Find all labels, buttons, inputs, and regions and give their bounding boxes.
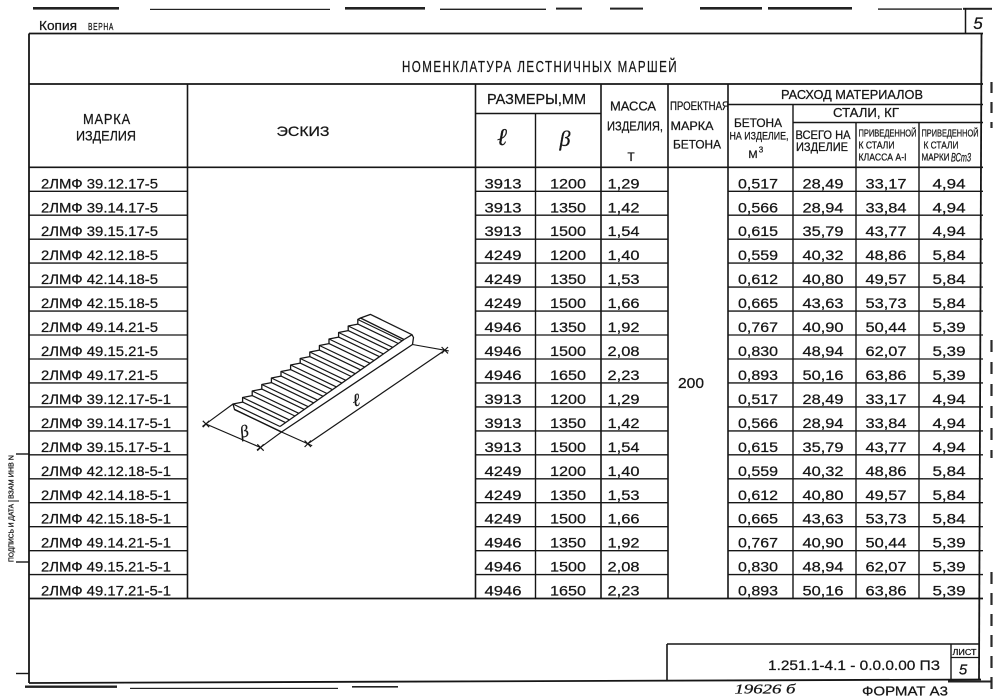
svg-text:2ЛМФ 49.14.21-5: 2ЛМФ 49.14.21-5 — [41, 319, 158, 335]
svg-text:43,77: 43,77 — [866, 224, 907, 239]
svg-text:49,57: 49,57 — [866, 488, 907, 503]
svg-text:1,53: 1,53 — [608, 488, 640, 503]
svg-text:28,94: 28,94 — [803, 416, 845, 431]
svg-text:4,94: 4,94 — [933, 392, 967, 407]
svg-text:1650: 1650 — [550, 584, 586, 599]
svg-text:1200: 1200 — [550, 176, 586, 191]
svg-text:0,615: 0,615 — [738, 224, 778, 239]
svg-text:43,63: 43,63 — [803, 512, 844, 527]
svg-text:МАРКА: МАРКА — [83, 111, 131, 128]
svg-text:МАССА: МАССА — [610, 99, 656, 114]
svg-text:50,44: 50,44 — [866, 536, 908, 551]
svg-text:0,615: 0,615 — [738, 440, 778, 455]
svg-text:3913: 3913 — [485, 224, 522, 239]
svg-text:2,08: 2,08 — [608, 344, 640, 359]
svg-text:3913: 3913 — [485, 176, 522, 191]
svg-text:ВСт3: ВСт3 — [951, 151, 971, 165]
svg-text:40,90: 40,90 — [803, 536, 844, 551]
svg-text:4,94: 4,94 — [933, 224, 967, 239]
svg-text:1.251.1-4.1 - 0.0.0.00 ПЗ: 1.251.1-4.1 - 0.0.0.00 ПЗ — [768, 658, 940, 673]
svg-text:5,39: 5,39 — [933, 584, 966, 599]
svg-text:0,893: 0,893 — [738, 368, 778, 383]
svg-text:4,94: 4,94 — [933, 176, 967, 191]
svg-text:РАСХОД МАТЕРИАЛОВ: РАСХОД МАТЕРИАЛОВ — [781, 88, 923, 102]
svg-text:4946: 4946 — [485, 536, 522, 551]
svg-text:50,16: 50,16 — [803, 584, 844, 599]
svg-text:0,665: 0,665 — [738, 296, 778, 311]
svg-text:М: М — [748, 149, 757, 161]
svg-text:5,84: 5,84 — [933, 248, 967, 263]
svg-text:2ЛМФ 42.12.18-5-1: 2ЛМФ 42.12.18-5-1 — [41, 463, 171, 479]
svg-text:35,79: 35,79 — [803, 224, 844, 239]
svg-text:3: 3 — [759, 146, 764, 155]
svg-text:БЕТОНА: БЕТОНА — [673, 138, 721, 152]
svg-text:1,66: 1,66 — [608, 296, 640, 311]
svg-text:4249: 4249 — [485, 272, 522, 287]
svg-text:2ЛМФ 49.15.21-5: 2ЛМФ 49.15.21-5 — [41, 343, 158, 359]
svg-text:1350: 1350 — [550, 272, 586, 287]
svg-text:ИЗДЕЛИЕ: ИЗДЕЛИЕ — [796, 142, 848, 154]
svg-text:19626 б: 19626 б — [735, 683, 797, 697]
svg-text:ПРОЕКТНАЯ: ПРОЕКТНАЯ — [670, 99, 729, 113]
svg-text:2ЛМФ 49.14.21-5-1: 2ЛМФ 49.14.21-5-1 — [41, 535, 171, 551]
svg-text:2ЛМФ 39.14.17-5-1: 2ЛМФ 39.14.17-5-1 — [41, 415, 171, 431]
svg-text:3913: 3913 — [485, 416, 522, 431]
svg-text:4946: 4946 — [485, 344, 522, 359]
svg-text:33,17: 33,17 — [866, 176, 907, 191]
svg-text:2ЛМФ 49.15.21-5-1: 2ЛМФ 49.15.21-5-1 — [41, 559, 171, 575]
svg-text:48,94: 48,94 — [803, 560, 845, 575]
svg-text:1,66: 1,66 — [608, 512, 640, 527]
svg-text:0,665: 0,665 — [738, 512, 778, 527]
svg-text:2ЛМФ 39.15.17-5: 2ЛМФ 39.15.17-5 — [41, 223, 158, 239]
svg-text:ФОРМАТ А3: ФОРМАТ А3 — [862, 684, 948, 697]
svg-text:1500: 1500 — [550, 440, 586, 455]
svg-text:ИЗДЕЛИЯ: ИЗДЕЛИЯ — [76, 128, 136, 144]
svg-text:2ЛМФ 39.12.17-5-1: 2ЛМФ 39.12.17-5-1 — [41, 391, 171, 407]
svg-text:0,559: 0,559 — [738, 464, 778, 479]
svg-text:1,92: 1,92 — [608, 320, 640, 335]
svg-text:МАРКИ: МАРКИ — [922, 152, 950, 164]
svg-text:4249: 4249 — [485, 248, 522, 263]
svg-text:ЭСКИЗ: ЭСКИЗ — [277, 123, 330, 139]
svg-text:40,80: 40,80 — [803, 488, 844, 503]
svg-text:1,29: 1,29 — [608, 392, 640, 407]
svg-text:1,42: 1,42 — [608, 416, 640, 431]
svg-text:2ЛМФ 42.12.18-5: 2ЛМФ 42.12.18-5 — [41, 247, 158, 263]
svg-text:3913: 3913 — [485, 440, 522, 455]
svg-text:1500: 1500 — [550, 344, 586, 359]
svg-text:1200: 1200 — [550, 464, 586, 479]
svg-text:ПРИВЕДЕННОЙ: ПРИВЕДЕННОЙ — [859, 127, 917, 140]
svg-text:43,63: 43,63 — [803, 296, 844, 311]
svg-text:ВЗАМ ИНВ N: ВЗАМ ИНВ N — [9, 455, 16, 499]
svg-text:62,07: 62,07 — [866, 344, 907, 359]
svg-text:0,612: 0,612 — [738, 272, 778, 287]
svg-text:43,77: 43,77 — [866, 440, 907, 455]
svg-text:4946: 4946 — [485, 320, 522, 335]
svg-text:2,23: 2,23 — [608, 368, 640, 383]
svg-text:200: 200 — [678, 375, 704, 392]
svg-text:2ЛМФ 42.15.18-5-1: 2ЛМФ 42.15.18-5-1 — [41, 511, 171, 527]
svg-text:5,84: 5,84 — [933, 488, 967, 503]
svg-text:5,84: 5,84 — [933, 512, 967, 527]
svg-text:28,49: 28,49 — [803, 392, 844, 407]
svg-text:50,16: 50,16 — [803, 368, 844, 383]
svg-text:5,39: 5,39 — [933, 344, 966, 359]
svg-text:5,84: 5,84 — [933, 296, 967, 311]
svg-text:53,73: 53,73 — [866, 296, 907, 311]
svg-text:4,94: 4,94 — [933, 440, 967, 455]
svg-text:53,73: 53,73 — [866, 512, 907, 527]
svg-text:ПОДПИСЬ И ДАТА: ПОДПИСЬ И ДАТА — [9, 504, 16, 562]
svg-text:2ЛМФ 49.17.21-5: 2ЛМФ 49.17.21-5 — [41, 367, 158, 383]
svg-text:33,17: 33,17 — [866, 392, 907, 407]
svg-text:5,39: 5,39 — [933, 536, 966, 551]
svg-text:40,80: 40,80 — [803, 272, 844, 287]
svg-text:КЛАССА А-I: КЛАССА А-I — [859, 152, 907, 164]
svg-text:40,32: 40,32 — [803, 464, 844, 479]
svg-text:НОМЕНКЛАТУРА ЛЕСТНИЧНЫХ МАРШ: НОМЕНКЛАТУРА ЛЕСТНИЧНЫХ МАРШЕЙ — [402, 57, 678, 76]
svg-text:0,612: 0,612 — [738, 488, 778, 503]
svg-text:β: β — [559, 126, 571, 151]
svg-text:1,42: 1,42 — [608, 200, 640, 215]
svg-text:49,57: 49,57 — [866, 272, 907, 287]
svg-text:48,86: 48,86 — [866, 464, 907, 479]
svg-text:1,40: 1,40 — [608, 464, 640, 479]
svg-text:5,39: 5,39 — [933, 368, 966, 383]
svg-text:5,84: 5,84 — [933, 464, 967, 479]
svg-text:62,07: 62,07 — [866, 560, 907, 575]
svg-text:РАЗМЕРЫ,ММ: РАЗМЕРЫ,ММ — [487, 92, 586, 108]
svg-text:2,08: 2,08 — [608, 560, 640, 575]
svg-text:0,767: 0,767 — [738, 536, 778, 551]
svg-text:50,44: 50,44 — [866, 320, 908, 335]
svg-text:4249: 4249 — [485, 512, 522, 527]
svg-text:ЛИСТ: ЛИСТ — [953, 648, 977, 657]
svg-text:ПРИВЕДЕННОЙ: ПРИВЕДЕННОЙ — [922, 127, 979, 140]
svg-text:1500: 1500 — [550, 224, 586, 239]
svg-text:5: 5 — [959, 662, 968, 679]
svg-text:1200: 1200 — [550, 392, 586, 407]
svg-text:НА ИЗДЕЛИЕ,: НА ИЗДЕЛИЕ, — [730, 131, 789, 143]
svg-text:0,830: 0,830 — [738, 560, 778, 575]
svg-text:0,767: 0,767 — [738, 320, 778, 335]
svg-text:2ЛМФ 39.14.17-5: 2ЛМФ 39.14.17-5 — [41, 199, 158, 215]
svg-text:35,79: 35,79 — [803, 440, 844, 455]
svg-text:2,23: 2,23 — [608, 584, 640, 599]
svg-text:4,94: 4,94 — [933, 416, 967, 431]
svg-text:48,86: 48,86 — [866, 248, 907, 263]
svg-text:4249: 4249 — [485, 488, 522, 503]
svg-text:0,517: 0,517 — [738, 176, 778, 191]
svg-text:4249: 4249 — [485, 296, 522, 311]
svg-text:48,94: 48,94 — [803, 344, 845, 359]
svg-text:0,830: 0,830 — [738, 344, 778, 359]
svg-text:5,84: 5,84 — [933, 272, 967, 287]
svg-text:1350: 1350 — [550, 536, 586, 551]
svg-text:0,517: 0,517 — [738, 392, 778, 407]
svg-text:0,566: 0,566 — [738, 200, 778, 215]
svg-text:1500: 1500 — [550, 512, 586, 527]
svg-text:1500: 1500 — [550, 296, 586, 311]
svg-text:5,39: 5,39 — [933, 320, 966, 335]
svg-text:БЕТОНА: БЕТОНА — [734, 116, 782, 130]
svg-text:33,84: 33,84 — [866, 416, 908, 431]
svg-text:2ЛМФ 42.14.18-5: 2ЛМФ 42.14.18-5 — [41, 271, 158, 287]
svg-text:28,49: 28,49 — [803, 176, 844, 191]
svg-text:ВСЕГО НА: ВСЕГО НА — [796, 130, 851, 142]
svg-text:28,94: 28,94 — [803, 200, 845, 215]
svg-text:40,90: 40,90 — [803, 320, 844, 335]
svg-text:3913: 3913 — [485, 392, 522, 407]
svg-text:5,39: 5,39 — [933, 560, 966, 575]
svg-text:1,53: 1,53 — [608, 272, 640, 287]
svg-text:1200: 1200 — [550, 248, 586, 263]
svg-text:1,54: 1,54 — [608, 224, 641, 239]
svg-text:1500: 1500 — [550, 560, 586, 575]
svg-text:4946: 4946 — [485, 560, 522, 575]
svg-text:ИЗДЕЛИЯ,: ИЗДЕЛИЯ, — [607, 119, 663, 134]
svg-text:1350: 1350 — [550, 488, 586, 503]
svg-text:2ЛМФ 49.17.21-5-1: 2ЛМФ 49.17.21-5-1 — [41, 583, 171, 599]
svg-text:1,92: 1,92 — [608, 536, 640, 551]
svg-text:63,86: 63,86 — [866, 584, 907, 599]
svg-text:1350: 1350 — [550, 200, 586, 215]
svg-text:4,94: 4,94 — [933, 200, 967, 215]
svg-text:5: 5 — [973, 14, 983, 33]
svg-text:ℓ: ℓ — [497, 125, 507, 151]
svg-text:0,559: 0,559 — [738, 248, 778, 263]
svg-text:ℓ: ℓ — [350, 389, 362, 410]
svg-text:2ЛМФ 42.15.18-5: 2ЛМФ 42.15.18-5 — [41, 295, 158, 311]
svg-text:Копия: Копия — [39, 19, 77, 33]
svg-text:1,54: 1,54 — [608, 440, 641, 455]
svg-text:4946: 4946 — [485, 368, 522, 383]
svg-text:1,29: 1,29 — [608, 176, 640, 191]
svg-text:2ЛМФ 39.15.17-5-1: 2ЛМФ 39.15.17-5-1 — [41, 439, 171, 455]
svg-text:1650: 1650 — [550, 368, 586, 383]
svg-text:2ЛМФ 39.12.17-5: 2ЛМФ 39.12.17-5 — [41, 175, 158, 191]
svg-text:0,893: 0,893 — [738, 584, 778, 599]
svg-text:2ЛМФ 42.14.18-5-1: 2ЛМФ 42.14.18-5-1 — [41, 487, 171, 503]
svg-text:3913: 3913 — [485, 200, 522, 215]
svg-text:40,32: 40,32 — [803, 248, 844, 263]
svg-text:4946: 4946 — [485, 584, 522, 599]
svg-text:β: β — [237, 421, 252, 442]
svg-text:1,40: 1,40 — [608, 248, 640, 263]
svg-text:33,84: 33,84 — [866, 200, 908, 215]
svg-text:1350: 1350 — [550, 416, 586, 431]
svg-text:К СТАЛИ: К СТАЛИ — [859, 140, 895, 152]
svg-text:4249: 4249 — [485, 464, 522, 479]
svg-text:Т: Т — [627, 150, 635, 164]
svg-text:ВЕРНА: ВЕРНА — [88, 22, 114, 33]
svg-text:СТАЛИ, КГ: СТАЛИ, КГ — [833, 106, 899, 120]
svg-text:63,86: 63,86 — [866, 368, 907, 383]
svg-text:МАРКА: МАРКА — [671, 119, 714, 133]
svg-text:1350: 1350 — [550, 320, 586, 335]
svg-text:0,566: 0,566 — [738, 416, 778, 431]
